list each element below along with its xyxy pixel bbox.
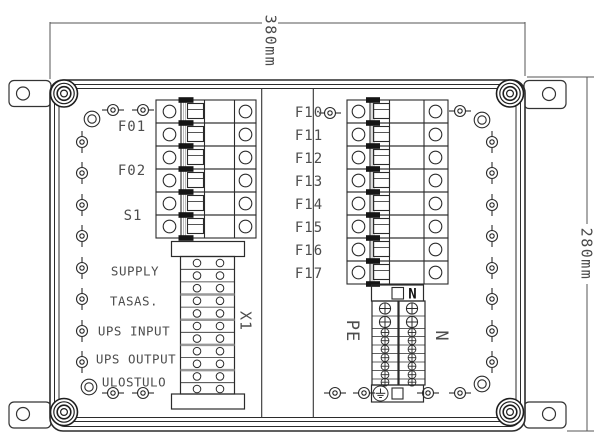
breaker-label-f17: F17 [295, 266, 323, 282]
corner-screw-bottom-right [497, 399, 524, 426]
zone-label-ups-input: UPS INPUT [98, 324, 170, 339]
mounting-hole [17, 408, 30, 421]
pe-busbar-label: PE [342, 320, 362, 342]
height-dimension-label: 280mm [578, 228, 596, 281]
mounting-hole [543, 408, 556, 421]
breaker-label-f13: F13 [295, 174, 323, 190]
breaker-label-f16: F16 [295, 243, 323, 259]
zone-label-tasas: TASAS. [110, 294, 158, 309]
mounting-tab-bottom-right [524, 402, 566, 428]
breaker-label-f15: F15 [295, 220, 323, 236]
corner-screw-bottom-left [51, 399, 78, 426]
mounting-tab-top-left [9, 81, 51, 107]
mounting-tab-bottom-left [9, 402, 51, 428]
breaker-label-f02: F02 [118, 163, 146, 179]
mounting-hole [543, 88, 556, 101]
enclosure-layout-drawing: 380mm 280mm [0, 0, 600, 441]
breaker-label-f14: F14 [295, 197, 323, 213]
width-dimension-label: 380mm [262, 15, 280, 68]
mounting-tab-top-right [524, 81, 566, 109]
zone-label-supply: SUPPLY [111, 264, 159, 279]
mounting-hole [17, 87, 30, 100]
breaker-label-s1: S1 [124, 208, 143, 224]
n-busbar-label: N [431, 330, 451, 341]
corner-screw-top-left [51, 80, 78, 107]
breaker-label-f01: F01 [118, 119, 146, 135]
corner-screw-top-right [497, 80, 524, 107]
terminal-strip-x1-label: X1 [237, 311, 255, 331]
breaker-toggles [366, 97, 380, 287]
n-box-label: N [408, 287, 416, 303]
dimension-width [50, 22, 525, 79]
zone-label-ulostulo: ULOSTULO [102, 375, 166, 390]
breaker-label-f12: F12 [295, 151, 323, 167]
breaker-label-f11: F11 [295, 128, 323, 144]
drawing-canvas: 380mm 280mm [0, 0, 600, 441]
breaker-label-f10: F10 [295, 105, 323, 121]
zone-label-ups-output: UPS OUTPUT [96, 352, 176, 367]
